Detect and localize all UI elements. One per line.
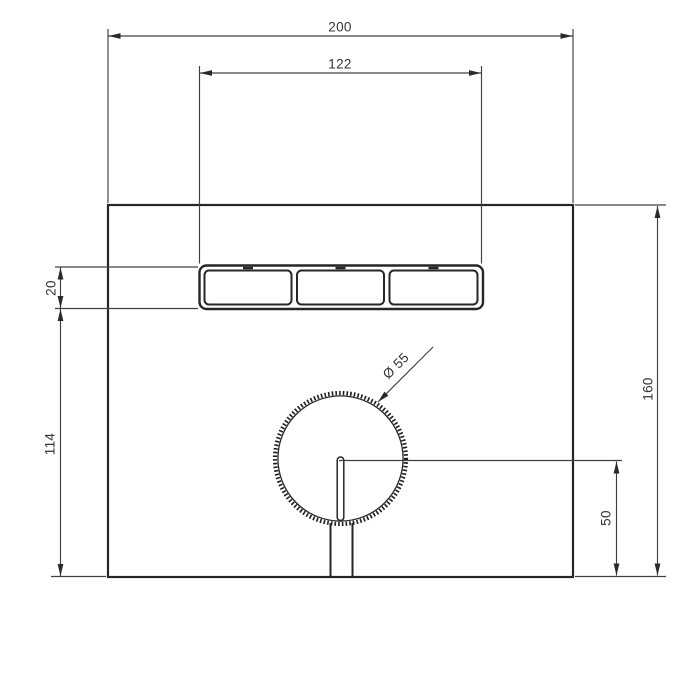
button-3-tick <box>429 267 439 269</box>
drawing-svg <box>0 0 700 700</box>
dim-label-plate-height: 160 <box>641 377 655 400</box>
technical-drawing-canvas: 200 122 20 114 160 50 Ø 55 <box>0 0 700 700</box>
dim-label-top-width: 200 <box>328 20 351 34</box>
dim-label-knob-center-to-bottom: 50 <box>599 510 613 526</box>
dim-label-button-span: 122 <box>328 57 351 71</box>
dim-label-button-height: 20 <box>44 280 58 296</box>
dimension-top-width <box>108 29 573 203</box>
button-2-tick <box>336 267 346 269</box>
fixture-geometry <box>108 205 573 577</box>
knob-lever-slot <box>337 457 344 521</box>
dim-label-left-lower-height: 114 <box>43 433 57 455</box>
button-row-frame <box>200 266 484 310</box>
dimension-left-lower-height <box>51 309 106 577</box>
button-1-tick <box>243 267 253 269</box>
